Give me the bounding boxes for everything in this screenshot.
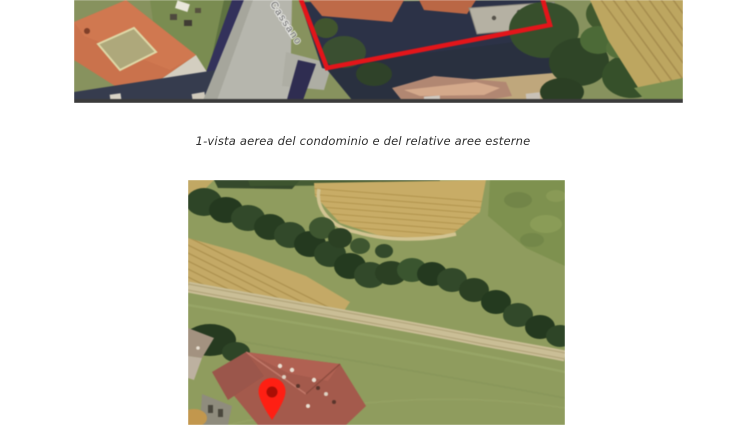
aerial-photo-bottom xyxy=(188,180,565,425)
photo-bottom-edge xyxy=(74,99,683,103)
aerial-photo-bottom-graphic xyxy=(188,180,565,425)
aerial-photo-top-graphic: Cassano xyxy=(74,0,683,103)
document-page: Cassano xyxy=(0,0,750,425)
photo-caption: 1-vista aerea del condominio e del relat… xyxy=(0,133,726,149)
aerial-photo-top: Cassano xyxy=(74,0,683,103)
caption-text: 1-vista aerea del condominio e del relat… xyxy=(196,134,531,148)
